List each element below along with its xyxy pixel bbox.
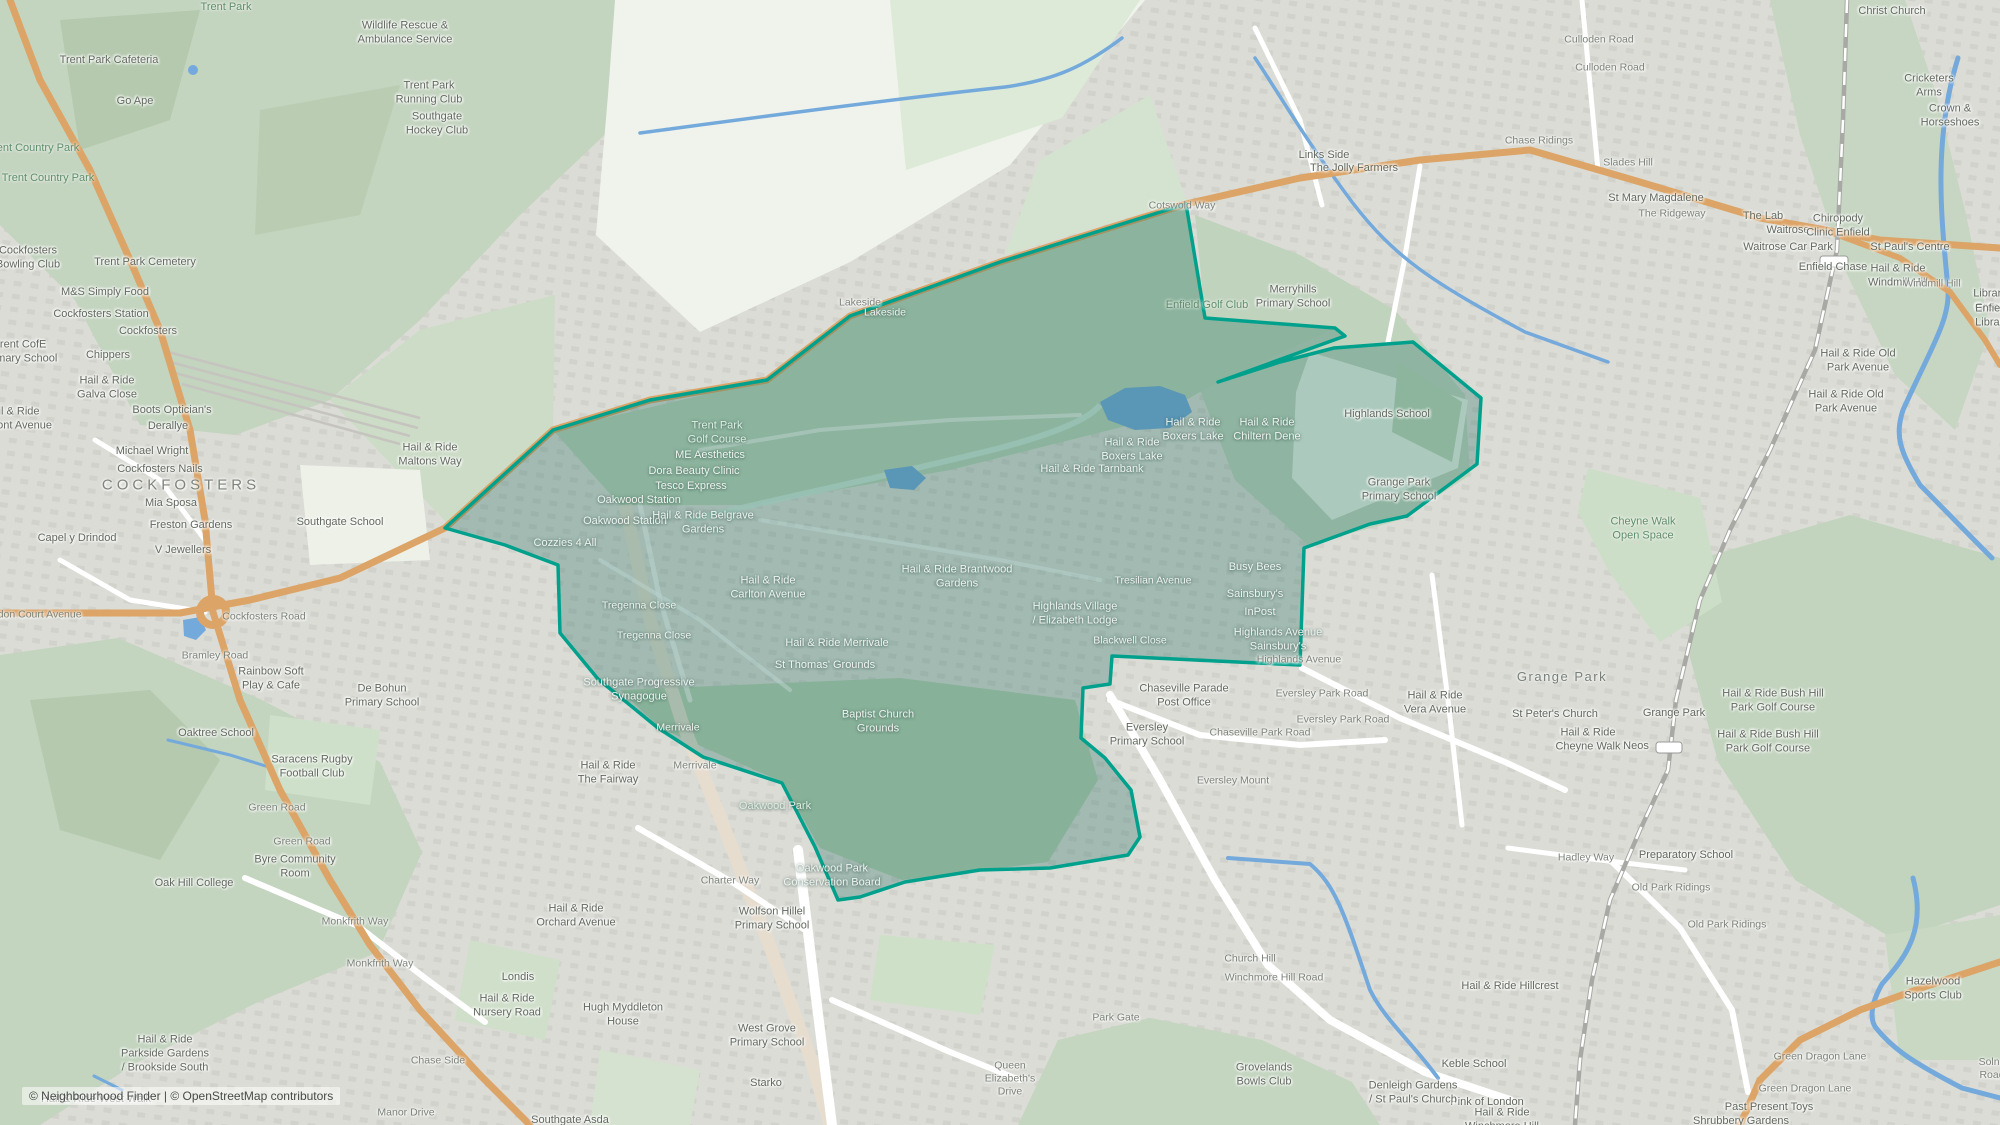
map-canvas[interactable]	[0, 0, 2000, 1125]
map-attribution[interactable]: © Neighbourhood Finder | © OpenStreetMap…	[22, 1087, 340, 1105]
enfield-chase-station-marker	[1820, 256, 1848, 267]
map-viewport[interactable]: Trent ParkWildlife Rescue & Ambulance Se…	[0, 0, 2000, 1125]
grange-park-station-marker	[1656, 742, 1682, 753]
